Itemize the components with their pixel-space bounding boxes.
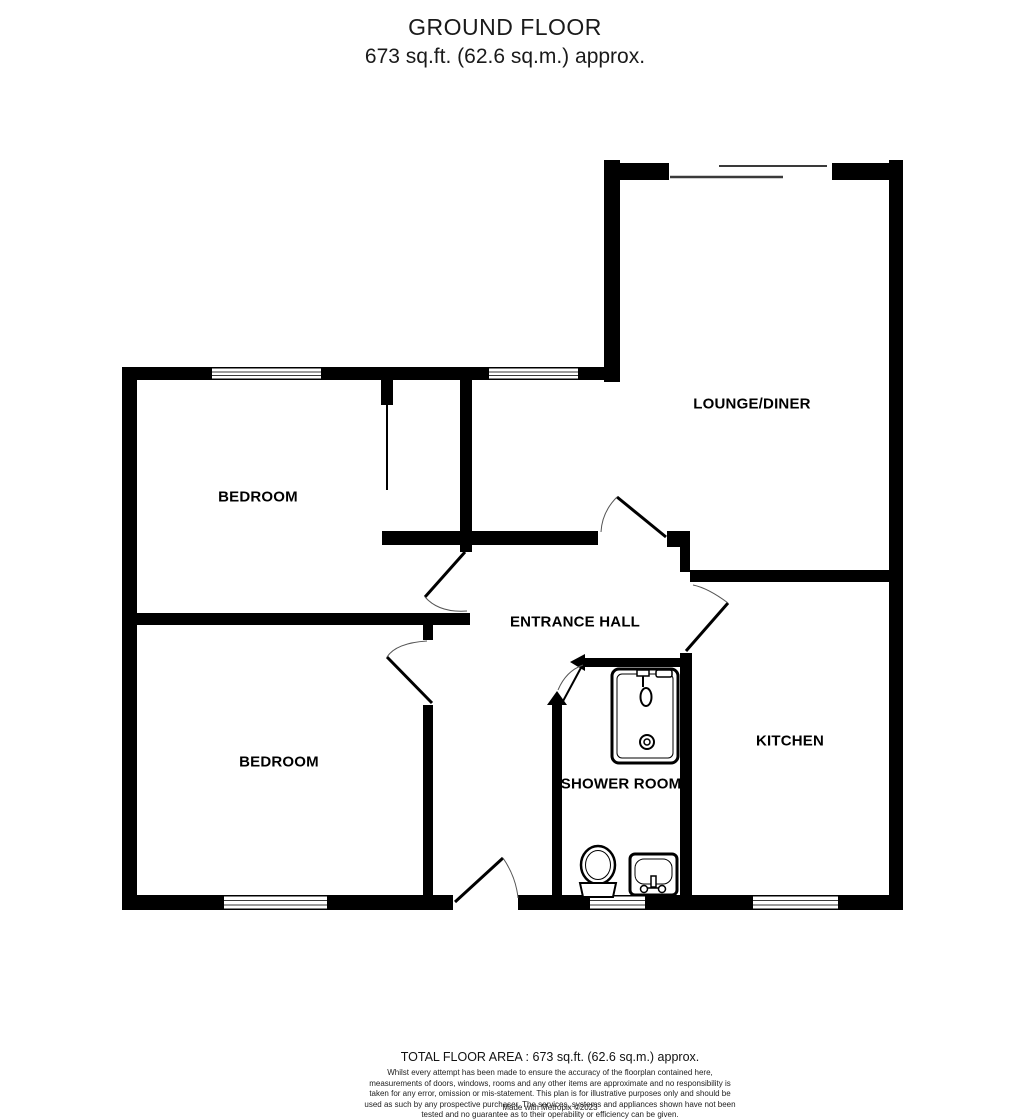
wall-shower-top bbox=[585, 658, 680, 667]
door-kitchen bbox=[686, 585, 728, 651]
door-tip-shower-top bbox=[570, 654, 585, 671]
floorplan-page: GROUND FLOOR 673 sq.ft. (62.6 sq.m.) app… bbox=[0, 0, 1024, 1120]
wall-shower-left bbox=[552, 705, 562, 895]
room-label-shower-room: SHOWER ROOM bbox=[561, 776, 682, 793]
front-door-opening bbox=[453, 895, 518, 910]
wall-lounge-door-stub bbox=[667, 531, 690, 547]
metropix-credit: Made with Metropix ©2023 bbox=[360, 1103, 740, 1112]
wall-divider-stub bbox=[423, 625, 433, 640]
wall-lounge-left bbox=[604, 160, 620, 382]
door-shower bbox=[558, 664, 583, 703]
window-shower bbox=[590, 897, 645, 909]
window-kitchen bbox=[753, 897, 838, 909]
room-label-kitchen: KITCHEN bbox=[756, 733, 824, 750]
wall-stub-vertical bbox=[680, 547, 690, 572]
wall-lounge-top-left bbox=[604, 163, 669, 180]
shower-head-icon bbox=[641, 688, 652, 706]
wall-bedroom1-hall bbox=[460, 380, 472, 552]
wall-partition-stub bbox=[381, 380, 393, 405]
door-bedroom1 bbox=[425, 552, 467, 611]
window-bedroom1 bbox=[212, 369, 321, 379]
wall-partition-thin bbox=[386, 405, 388, 490]
total-floor-area: TOTAL FLOOR AREA : 673 sq.ft. (62.6 sq.m… bbox=[270, 1050, 830, 1064]
room-label-lounge: LOUNGE/DINER bbox=[693, 396, 810, 413]
door-bedroom2 bbox=[387, 641, 432, 703]
room-label-entrance-hall: ENTRANCE HALL bbox=[510, 614, 640, 631]
basin-icon bbox=[630, 854, 677, 895]
room-label-bedroom-top: BEDROOM bbox=[218, 489, 298, 506]
window-bedroom2 bbox=[224, 897, 327, 909]
shower-tray-icon bbox=[612, 669, 678, 763]
wall-kitchen-top bbox=[690, 570, 889, 582]
walls bbox=[122, 160, 903, 910]
wall-kitchen-left bbox=[680, 653, 692, 910]
room-label-bedroom-bottom: BEDROOM bbox=[239, 754, 319, 771]
wall-bedroom2-right bbox=[423, 705, 433, 895]
floorplan-svg bbox=[0, 0, 1024, 1120]
door-lounge bbox=[601, 497, 666, 537]
patio-doors-lounge bbox=[670, 166, 827, 177]
disclaimer-text: Whilst every attempt has been made to en… bbox=[360, 1068, 740, 1120]
wall-hall-horizontal bbox=[382, 531, 598, 545]
wall-bedroom-divider bbox=[122, 613, 470, 625]
toilet-icon bbox=[580, 846, 616, 897]
window-hall bbox=[489, 369, 578, 379]
wall-left-outer bbox=[122, 367, 137, 910]
wall-right-outer bbox=[889, 160, 903, 910]
